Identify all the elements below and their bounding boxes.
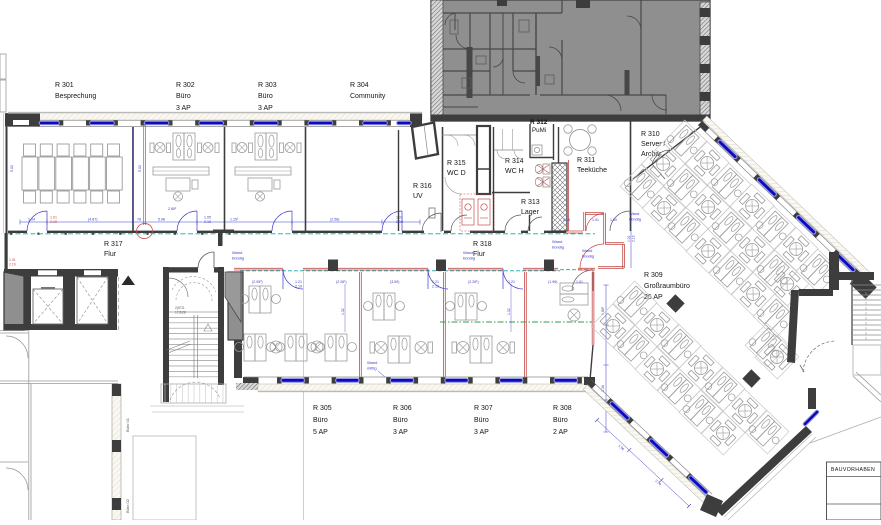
svg-text:Teeküche: Teeküche bbox=[577, 167, 607, 174]
svg-text:3 AP: 3 AP bbox=[258, 105, 273, 112]
svg-text:PuMi: PuMi bbox=[532, 127, 546, 134]
svg-text:2 AP: 2 AP bbox=[553, 429, 568, 436]
svg-text:2.80²: 2.80² bbox=[168, 207, 177, 211]
svg-text:2.19: 2.19 bbox=[204, 220, 211, 224]
svg-text:WC H: WC H bbox=[505, 168, 524, 175]
svg-text:Wand: Wand bbox=[629, 211, 639, 216]
svg-text:Wand: Wand bbox=[232, 250, 242, 255]
svg-text:Wand: Wand bbox=[582, 248, 592, 253]
svg-text:1.30: 1.30 bbox=[610, 218, 617, 222]
svg-text:5.02: 5.02 bbox=[10, 165, 14, 172]
svg-text:R 310: R 310 bbox=[641, 131, 660, 138]
svg-text:(2.58): (2.58) bbox=[330, 218, 339, 222]
svg-text:R 315: R 315 bbox=[447, 160, 466, 167]
svg-text:2.19: 2.19 bbox=[396, 220, 403, 224]
svg-text:Büro: Büro bbox=[553, 417, 568, 424]
svg-text:Büro: Büro bbox=[176, 93, 191, 100]
svg-text:bündig: bündig bbox=[463, 256, 475, 261]
svg-text:1.21: 1.21 bbox=[508, 280, 515, 284]
svg-text:17,5/28: 17,5/28 bbox=[175, 311, 186, 315]
svg-text:2.19: 2.19 bbox=[632, 235, 636, 242]
svg-text:3 AP: 3 AP bbox=[474, 429, 489, 436]
svg-text:R 318: R 318 bbox=[473, 241, 492, 248]
svg-text:2(STG: 2(STG bbox=[175, 306, 185, 310]
svg-text:3 AP: 3 AP bbox=[393, 429, 408, 436]
svg-text:Büro: Büro bbox=[258, 93, 273, 100]
svg-text:bündig: bündig bbox=[582, 254, 594, 259]
svg-text:BAUVORHABEN: BAUVORHABEN bbox=[831, 467, 875, 473]
svg-text:Wand: Wand bbox=[367, 360, 377, 365]
svg-text:1.01: 1.01 bbox=[576, 280, 583, 284]
svg-text:2.48: 2.48 bbox=[563, 218, 570, 222]
svg-text:25 AP: 25 AP bbox=[644, 294, 663, 301]
svg-text:R 305: R 305 bbox=[313, 405, 332, 412]
svg-text:1.01: 1.01 bbox=[396, 216, 403, 220]
svg-text:Wand: Wand bbox=[463, 250, 473, 255]
svg-text:WC D: WC D bbox=[447, 170, 466, 177]
svg-text:Wand: Wand bbox=[552, 239, 562, 244]
svg-text:R 301: R 301 bbox=[55, 82, 74, 89]
svg-text:2.19: 2.19 bbox=[295, 285, 302, 289]
svg-text:5.98: 5.98 bbox=[158, 218, 165, 222]
svg-text:Büro 02: Büro 02 bbox=[125, 498, 130, 513]
svg-text:78: 78 bbox=[137, 218, 141, 222]
svg-text:Büro: Büro bbox=[474, 417, 489, 424]
svg-text:R 309: R 309 bbox=[644, 272, 663, 279]
svg-text:UV: UV bbox=[413, 193, 423, 200]
svg-text:(3.59): (3.59) bbox=[390, 280, 399, 284]
svg-text:(2.26¹): (2.26¹) bbox=[468, 280, 479, 284]
svg-text:5.02: 5.02 bbox=[138, 165, 142, 172]
svg-text:R 306: R 306 bbox=[393, 405, 412, 412]
svg-text:R 303: R 303 bbox=[258, 82, 277, 89]
svg-text:1.21: 1.21 bbox=[295, 280, 302, 284]
svg-text:1.32: 1.32 bbox=[341, 308, 345, 315]
svg-text:Flur: Flur bbox=[104, 251, 117, 258]
svg-text:5 AP: 5 AP bbox=[313, 429, 328, 436]
svg-text:Büro 01: Büro 01 bbox=[125, 417, 130, 432]
svg-text:(1.96): (1.96) bbox=[548, 280, 557, 284]
svg-text:2.19: 2.19 bbox=[432, 285, 439, 289]
svg-text:R 308: R 308 bbox=[553, 405, 572, 412]
svg-text:2.19: 2.19 bbox=[50, 220, 57, 224]
svg-text:1.04: 1.04 bbox=[28, 218, 35, 222]
svg-text:1.05: 1.05 bbox=[204, 216, 211, 220]
svg-text:R 312: R 312 bbox=[530, 119, 548, 126]
svg-text:2.19: 2.19 bbox=[9, 263, 16, 267]
svg-text:R 304: R 304 bbox=[350, 82, 369, 89]
svg-text:(4.87): (4.87) bbox=[88, 218, 97, 222]
svg-text:3 AP: 3 AP bbox=[176, 105, 191, 112]
svg-text:bündig: bündig bbox=[552, 245, 564, 250]
svg-text:Server /: Server / bbox=[641, 141, 666, 148]
svg-text:mittig: mittig bbox=[367, 366, 377, 371]
svg-text:(2.05²): (2.05²) bbox=[252, 280, 263, 284]
svg-text:R 317: R 317 bbox=[104, 241, 123, 248]
svg-text:Lager: Lager bbox=[521, 209, 540, 216]
svg-text:R 316: R 316 bbox=[413, 183, 432, 190]
svg-text:1.01: 1.01 bbox=[50, 216, 57, 220]
svg-text:1.51: 1.51 bbox=[592, 218, 599, 222]
svg-text:Großraumbüro: Großraumbüro bbox=[644, 283, 690, 290]
svg-text:Besprechung: Besprechung bbox=[55, 93, 96, 100]
svg-text:Büro: Büro bbox=[313, 417, 328, 424]
svg-text:R 307: R 307 bbox=[474, 405, 493, 412]
svg-text:bündig: bündig bbox=[232, 256, 244, 261]
svg-text:Community: Community bbox=[350, 93, 386, 100]
svg-text:1.15²: 1.15² bbox=[230, 218, 239, 222]
svg-text:1.21: 1.21 bbox=[432, 280, 439, 284]
svg-text:R 302: R 302 bbox=[176, 82, 195, 89]
svg-text:R 313: R 313 bbox=[521, 199, 540, 206]
svg-text:1.01: 1.01 bbox=[627, 235, 631, 242]
svg-text:1.01: 1.01 bbox=[9, 258, 16, 262]
svg-text:(2.26¹): (2.26¹) bbox=[336, 280, 347, 284]
svg-text:Büro: Büro bbox=[393, 417, 408, 424]
svg-text:R 311: R 311 bbox=[577, 157, 595, 164]
svg-text:1.32: 1.32 bbox=[507, 308, 511, 315]
